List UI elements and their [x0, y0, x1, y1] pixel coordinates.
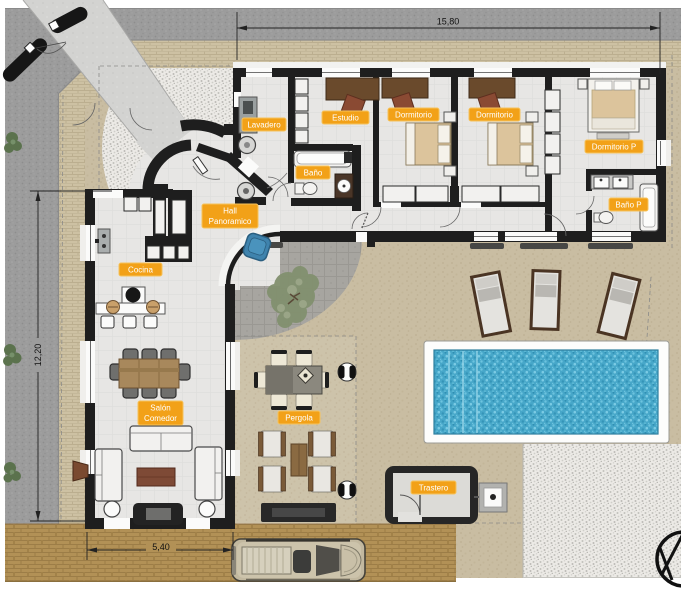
- svg-text:5,40: 5,40: [152, 542, 170, 552]
- svg-text:Trastero: Trastero: [419, 484, 449, 493]
- svg-text:Estudio: Estudio: [332, 114, 359, 123]
- svg-text:Dormitorio P: Dormitorio P: [592, 143, 636, 152]
- svg-text:15,80: 15,80: [437, 17, 460, 27]
- svg-text:Cocina: Cocina: [128, 266, 153, 275]
- svg-text:Lavadero: Lavadero: [247, 121, 281, 130]
- svg-text:Baño P: Baño P: [615, 201, 641, 210]
- svg-text:Baño: Baño: [304, 169, 323, 178]
- svg-text:Panoramico: Panoramico: [209, 217, 252, 226]
- svg-text:Pergola: Pergola: [285, 414, 313, 423]
- svg-text:12,20: 12,20: [33, 344, 43, 367]
- svg-text:Dormitorio: Dormitorio: [395, 111, 432, 120]
- svg-text:Dormitorio: Dormitorio: [476, 111, 513, 120]
- svg-text:Hall: Hall: [223, 207, 237, 216]
- svg-text:Comedor: Comedor: [144, 414, 177, 423]
- svg-text:Salón: Salón: [150, 404, 170, 413]
